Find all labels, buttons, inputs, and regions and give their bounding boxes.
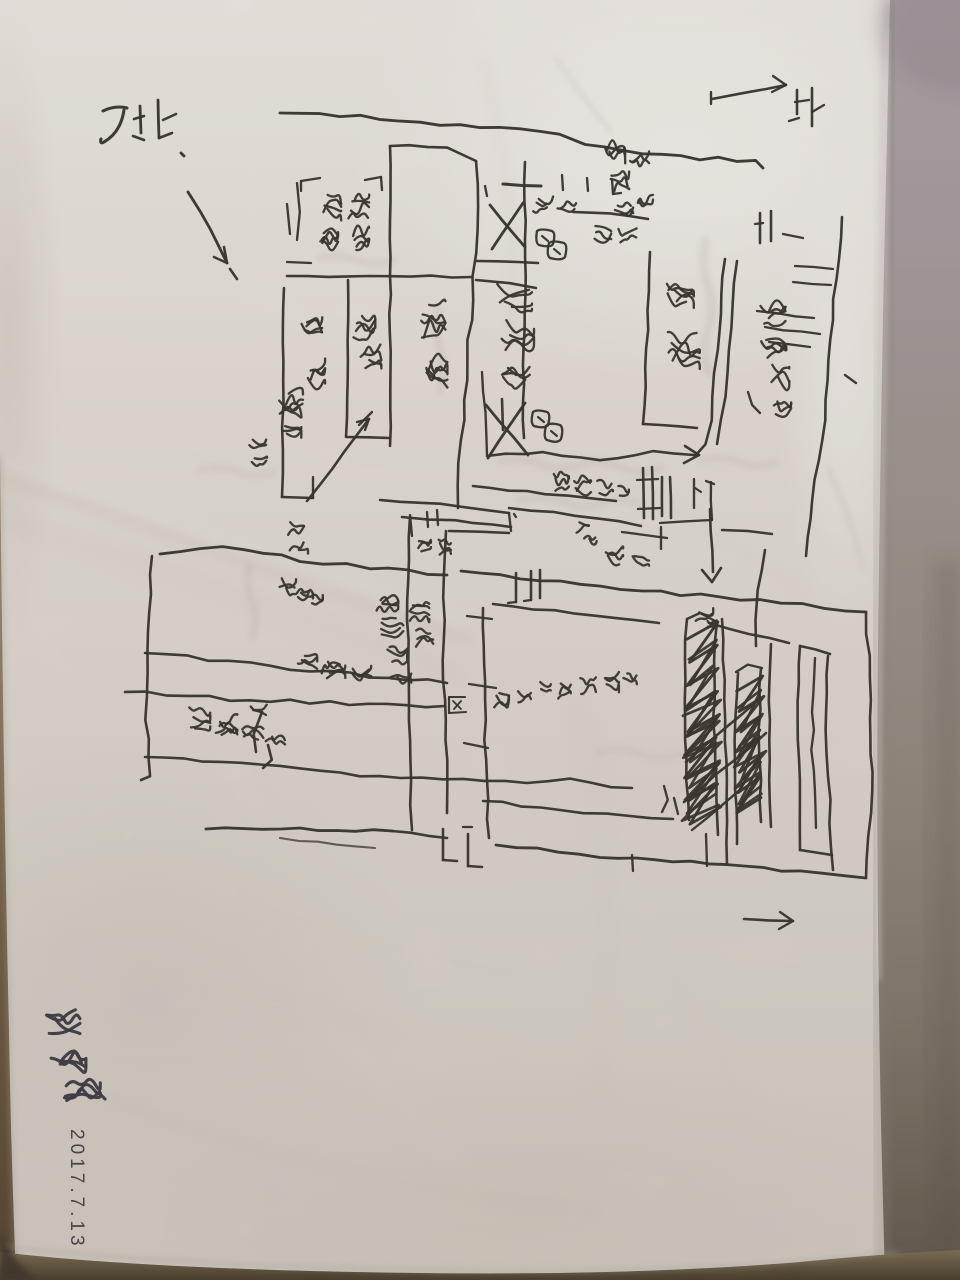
svg-text:2017.7.13: 2017.7.13 [66,1129,87,1250]
